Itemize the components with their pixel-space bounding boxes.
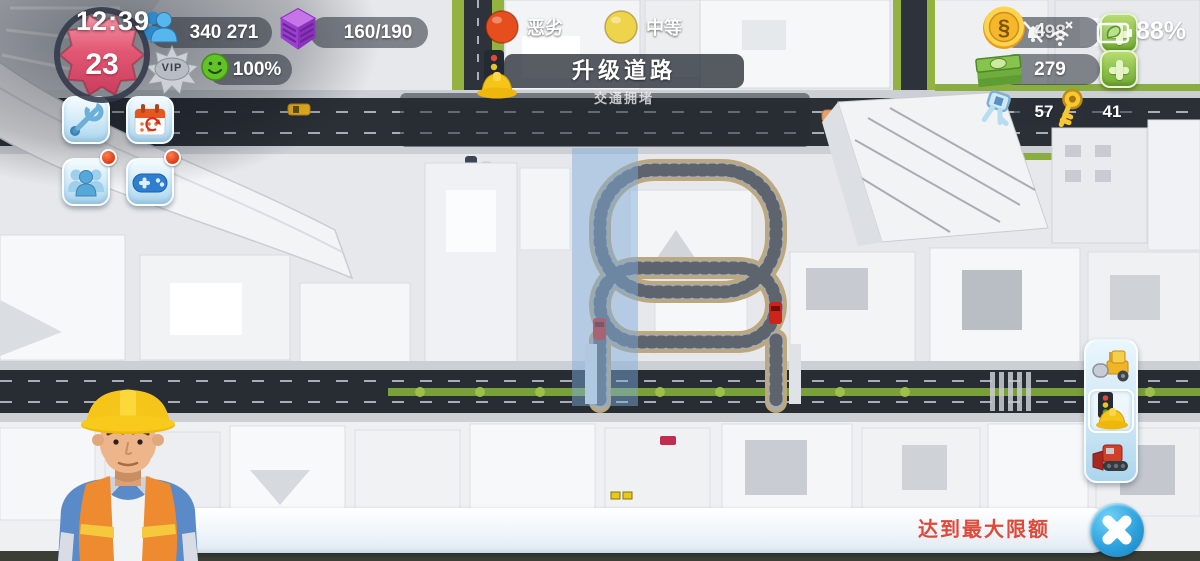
road-panel-title: 升级道路 [504,54,744,88]
population-value: 340 271 [190,22,259,43]
upgrade-road-icon [1090,391,1132,431]
road-panel-subtitle: 交通拥堵 [504,88,744,107]
social-people-icon [65,162,107,202]
battery-percent: 88% [1136,17,1186,46]
network-type: 4 [1035,20,1045,41]
gamepad-icon [130,162,170,202]
golden-keys-value: 41 [1103,102,1122,121]
build-road-button[interactable] [1088,344,1134,387]
minigames-notification-dot [164,149,181,166]
battery-saver-icon [1098,24,1132,42]
recording-time-overlay: 12:39 [76,6,150,37]
wifi-x-icon [1052,22,1072,46]
game-screen: 12:39 23 VIP 340 271 160/190 100% 898 [0,0,1200,561]
buy-simcash-button[interactable] [1100,50,1138,88]
legend-medium-label: 中等 [646,14,682,40]
legend-item-bad: 恶劣 [484,9,563,45]
steamroller-icon [1089,347,1133,385]
social-button[interactable] [62,158,110,206]
road-selection-highlight [572,148,638,406]
construction-worker-avatar[interactable] [48,382,208,561]
golden-key-icon [1048,88,1092,132]
platinum-key-icon [978,88,1022,132]
bulldozer-icon [1089,438,1133,476]
social-notification-dot [100,149,117,166]
pink-sign [660,436,676,445]
storage-icon [272,2,324,54]
toast-close-button[interactable] [1090,503,1144,557]
legend-bad-dot [484,9,520,45]
upgrade-road-button[interactable] [1088,389,1134,433]
close-icon [1090,503,1144,557]
cash-icon [972,48,1026,92]
simcash-value: 279 [1034,59,1066,80]
road-build-toolbar [1084,339,1138,483]
toast-message: 达到最大限额 [918,508,1050,553]
storage-pill[interactable]: 160/190 [310,17,428,48]
legend-medium-dot [603,9,639,45]
happiness-icon [200,52,230,82]
legend-bad-label: 恶劣 [527,14,563,40]
vip-label: VIP [146,62,198,74]
demolish-road-button[interactable] [1088,435,1134,478]
legend-item-medium: 中等 [603,9,682,45]
level-number: 23 [52,48,152,82]
svg-text:§: § [998,15,1010,40]
minigames-button[interactable] [126,158,174,206]
storage-value: 160/190 [344,22,413,43]
happiness-value: 100% [233,59,282,80]
construction-hat-icon [470,50,524,102]
toast-bar: 达到最大限额 [170,508,1114,553]
